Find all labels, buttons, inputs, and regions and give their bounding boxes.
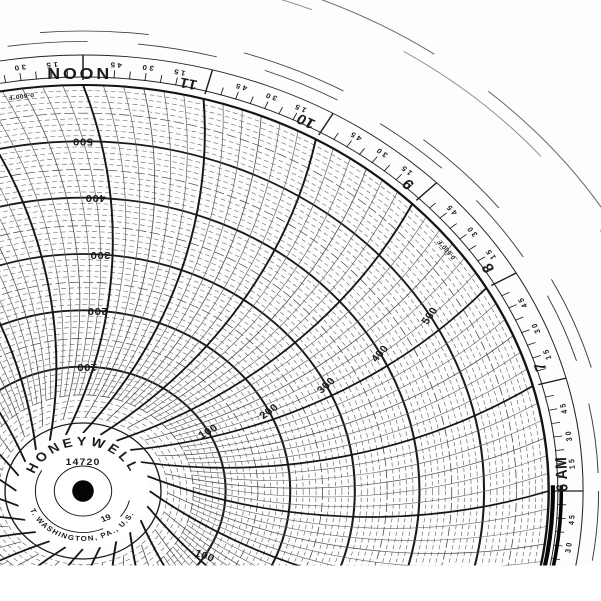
scanned-chart-paper: NOON11109876 AM3045153045153045153045153… <box>0 0 601 601</box>
scale-value-label: 400 <box>85 192 106 203</box>
minute-label: 30 <box>563 429 574 442</box>
minute-label: 30 <box>139 63 154 73</box>
chart-recorder-paper: NOON11109876 AM3045153045153045153045153… <box>0 0 601 601</box>
hub: HONEYWELL14720FT. WASHINGTON, PA., U.S.A… <box>16 433 149 549</box>
minute-label: 15 <box>44 60 59 69</box>
scale-value-label: 500 <box>73 136 94 147</box>
quarter-tick <box>114 70 115 78</box>
center-hole <box>72 480 94 502</box>
scale-value-label: 200 <box>87 305 108 316</box>
scan-bottom-edge <box>0 566 601 601</box>
scale-value-label: 300 <box>90 249 111 260</box>
minute-label: 45 <box>108 60 123 69</box>
minute-label: 45 <box>566 513 576 526</box>
scale-value-label: 100 <box>77 361 98 372</box>
part-number-text: 14720 <box>65 458 100 468</box>
minute-label: 30 <box>12 63 27 73</box>
minute-label: 15 <box>566 457 576 470</box>
minute-label: 30 <box>563 540 574 553</box>
